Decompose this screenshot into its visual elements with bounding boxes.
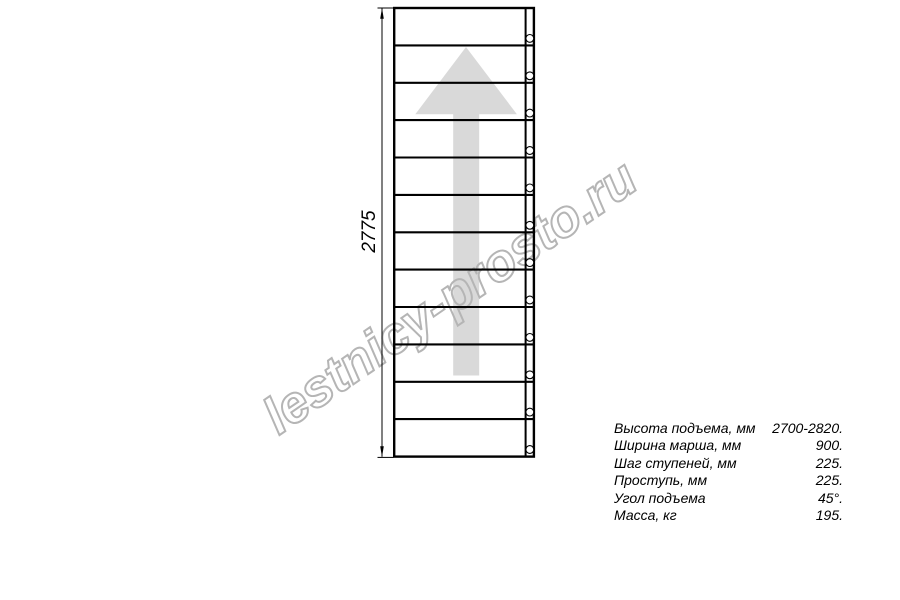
svg-text:lestnicy-prosto.ru: lestnicy-prosto.ru — [253, 149, 648, 446]
svg-text:2775: 2775 — [359, 210, 380, 254]
